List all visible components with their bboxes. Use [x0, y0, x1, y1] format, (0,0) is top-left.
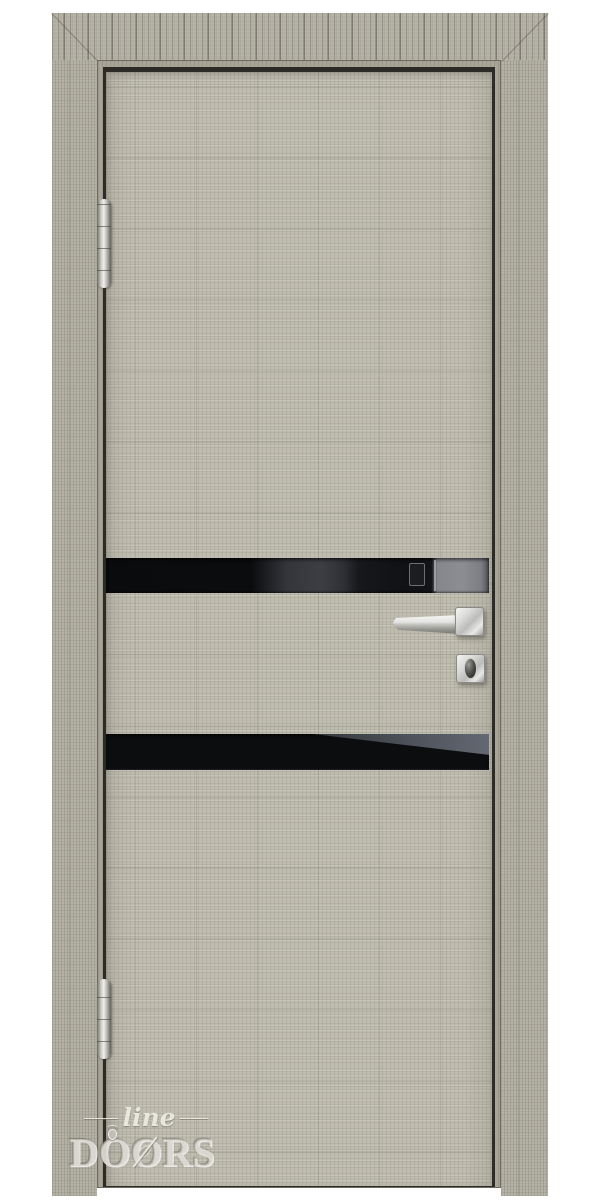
logo-letter-o-leaf: O — [131, 1132, 163, 1172]
logo-rule-left — [84, 1118, 118, 1119]
logo-letter-s: S — [192, 1132, 215, 1172]
hinge-bottom — [97, 979, 111, 1059]
door-handle-rose — [455, 607, 484, 636]
logo-word: D O O R S — [69, 1132, 224, 1172]
door-casing-right — [501, 60, 548, 1196]
door-slab — [106, 72, 492, 1186]
glass-reflection-highlight — [434, 560, 436, 591]
product-photo-scene: line D O O R S — [0, 0, 600, 1200]
hinge-top — [97, 199, 111, 288]
logo-script-text: line — [122, 1107, 175, 1129]
thumbturn-lock-rose — [456, 654, 485, 683]
brand-logo: line D O O R S — [68, 1106, 224, 1180]
glass-reflection-wedge — [313, 734, 489, 770]
door-casing-left — [52, 60, 97, 1196]
glass-reflection-door-edge — [409, 563, 425, 585]
door-unit: line D O O R S — [52, 13, 548, 1196]
acorn-body-icon — [108, 1129, 117, 1140]
glass-insert-lower — [106, 734, 489, 770]
door-casing-top — [52, 13, 548, 60]
thumbturn-knob — [464, 658, 477, 679]
door-handle-lever — [393, 615, 461, 634]
brand-logo-top-row: line — [68, 1106, 224, 1130]
glass-insert-upper — [106, 558, 489, 593]
logo-letter-d: D — [69, 1132, 99, 1172]
logo-letter-o-acorn: O — [99, 1132, 131, 1172]
logo-letter-r: R — [162, 1132, 192, 1172]
logo-rule-right — [180, 1118, 208, 1119]
